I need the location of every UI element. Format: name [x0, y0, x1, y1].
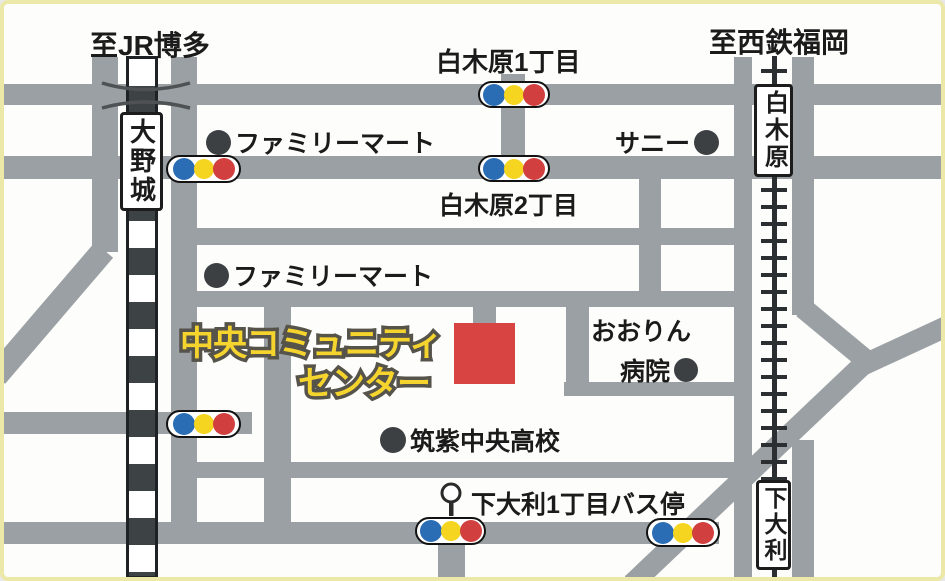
station-onojo: 大野城	[120, 112, 163, 211]
traffic-light-icon	[646, 518, 720, 547]
community-center-marker	[454, 323, 515, 384]
station-shimoori-label: 下大利	[762, 486, 785, 564]
landmark-dot-icon	[674, 358, 698, 382]
traffic-light-icon	[166, 410, 241, 438]
landmark-familymart-1: ファミリーマート	[206, 124, 435, 160]
station-shimoori: 下大利	[756, 480, 791, 570]
familymart-2-label: ファミリーマート	[233, 257, 433, 293]
landmark-dot-icon	[380, 427, 406, 453]
underpass-arc-bottom	[102, 102, 190, 108]
traffic-light-icon	[478, 81, 550, 108]
landmark-oorin-hospital: おおりん 病院	[591, 312, 698, 388]
access-map: 大野城 白木原 下大利 至JR博多 至西鉄福岡 白木原1丁目 白木原2丁目 ファ…	[0, 0, 945, 581]
landmark-dot-icon	[694, 130, 719, 155]
familymart-1-label: ファミリーマート	[235, 124, 435, 160]
landmark-dot-icon	[204, 263, 229, 288]
station-onojo-label: 大野城	[129, 118, 155, 205]
bus-stop-icon	[437, 481, 465, 519]
station-shirakibaru: 白木原	[754, 84, 793, 177]
direction-jr-hakata: 至JR博多	[90, 24, 210, 64]
oorin-hospital-line2: 病院	[620, 352, 670, 388]
landmark-dot-icon	[206, 130, 231, 155]
intersection-shirakibaru-1chome: 白木原1丁目	[436, 42, 580, 79]
direction-nishitetsu-fukuoka: 至西鉄福岡	[709, 21, 849, 61]
traffic-light-icon	[415, 517, 486, 545]
center-title-line2: センター センター	[298, 356, 430, 405]
station-shirakibaru-label: 白木原	[762, 90, 786, 171]
oorin-hospital-line1: おおりん	[591, 312, 698, 348]
sunny-label: サニー	[615, 124, 690, 160]
intersection-shirakibaru-2chome: 白木原2丁目	[439, 186, 578, 222]
underpass-arc-top	[102, 83, 190, 90]
school-label: 筑紫中央高校	[410, 422, 560, 458]
landmark-chikushi-chuo-hs: 筑紫中央高校	[380, 422, 560, 458]
landmark-familymart-2: ファミリーマート	[204, 257, 433, 293]
traffic-light-icon	[478, 155, 550, 182]
bus-stop-label: 下大利1丁目バス停	[471, 485, 685, 521]
landmark-sunny: サニー	[615, 124, 719, 160]
